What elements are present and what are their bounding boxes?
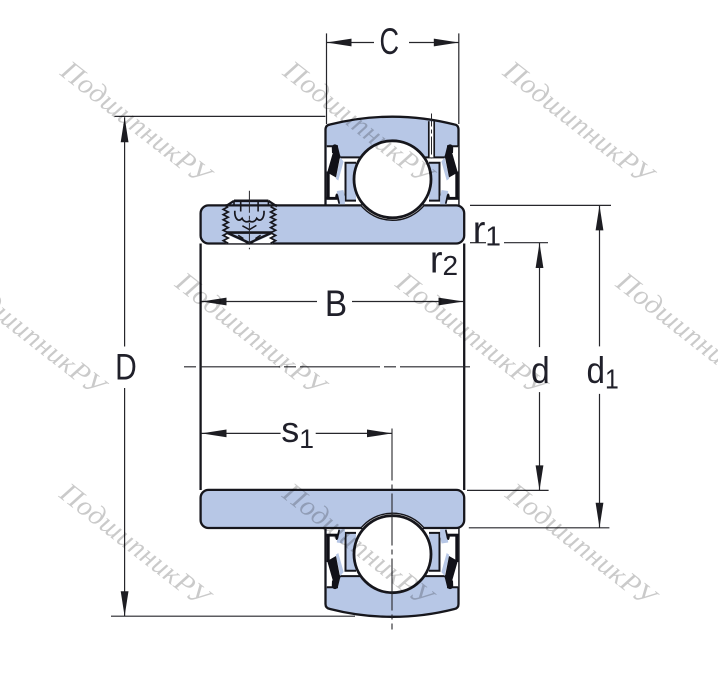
- svg-text:B: B: [325, 283, 347, 324]
- svg-text:D: D: [115, 348, 137, 389]
- svg-text:C: C: [380, 21, 400, 62]
